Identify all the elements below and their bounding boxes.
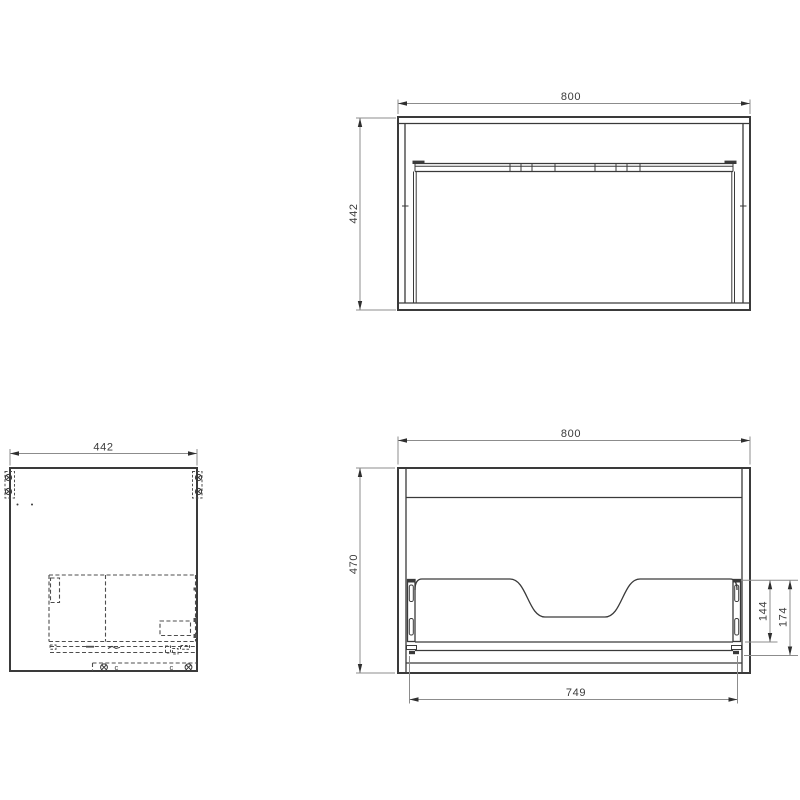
- dimension-top-width: 800: [398, 91, 750, 114]
- runner-outline: [49, 575, 197, 642]
- clip-mark-label: c: [170, 663, 174, 672]
- top-view-front-back-edges: [399, 124, 749, 304]
- rear-bottom-edges: [406, 642, 742, 663]
- top-view-outline: [398, 117, 750, 310]
- drawer-slide-right: [732, 580, 742, 655]
- dimension-label: 749: [566, 687, 586, 699]
- dimension-lines: [398, 437, 750, 465]
- side-view-outline: [10, 468, 197, 671]
- runner-end-cap: [50, 645, 56, 649]
- slide-foot-pad: [409, 651, 415, 654]
- back-panel-cutout-edge: [415, 579, 737, 617]
- runner-inner-box: [160, 621, 191, 636]
- pilot-hole-dot: [17, 504, 19, 506]
- side-view: c c: [5, 468, 202, 672]
- dimension-label: 800: [561, 428, 581, 440]
- top-view-slide-profiles: [414, 172, 735, 304]
- rail-slot-marks: [510, 164, 640, 172]
- drawer-slide-left: [407, 580, 417, 655]
- slide-foot-pad: [733, 651, 739, 654]
- hanging-rail: [413, 161, 737, 172]
- screw-cross-icon: [186, 665, 191, 670]
- hidden-drawer-runner: [49, 575, 197, 654]
- runner-mark: [86, 646, 94, 648]
- dimension-rear-height: 470: [348, 468, 395, 673]
- dimension-top-depth: 442: [348, 118, 396, 310]
- dimension-label: 800: [561, 91, 581, 103]
- hardware-strip-outline: [93, 663, 198, 671]
- technical-drawing-canvas: c c 800: [0, 0, 800, 800]
- dimension-lines: [744, 580, 798, 655]
- runner-edge-mark: [194, 588, 198, 591]
- slide-foot: [407, 646, 417, 650]
- slide-foot: [732, 646, 742, 650]
- slide-slot: [735, 619, 739, 636]
- dimension-lines: [356, 118, 396, 310]
- rail-edges: [415, 164, 733, 172]
- dimension-slide-height: 174: [744, 580, 798, 655]
- runner-lower-rails: [50, 647, 197, 653]
- slide-slot: [409, 585, 413, 602]
- rail-inner-edge: [415, 164, 733, 172]
- runner-edge-mark: [194, 634, 198, 638]
- slide-top-cap: [408, 580, 416, 583]
- rail-bracket-right: [725, 161, 737, 164]
- top-view: [398, 117, 750, 310]
- dimension-lines: [356, 468, 395, 673]
- pilot-hole-dot: [31, 504, 33, 506]
- runner-edge-mark: [194, 618, 198, 622]
- cabinet-drawing: c c 800: [0, 0, 800, 800]
- dimension-label: 144: [758, 601, 770, 621]
- rail-bracket-left: [413, 161, 425, 164]
- dimension-rear-width: 800: [398, 428, 750, 465]
- clip-mark-label: c: [115, 663, 119, 672]
- slide-top-cap: [733, 580, 741, 583]
- top-view-side-panel-inner-edges: [405, 124, 743, 304]
- dimension-label: 174: [778, 607, 790, 627]
- dimension-label: 442: [348, 203, 360, 223]
- dimension-label: 470: [348, 554, 360, 574]
- runner-bracket: [51, 578, 60, 603]
- slide-body: [408, 580, 416, 642]
- dimension-label: 442: [93, 442, 113, 454]
- screw-cross-icon: [102, 665, 107, 670]
- dimension-side-depth: 442: [10, 442, 197, 466]
- runner-latch-part: [173, 649, 179, 655]
- slide-slot: [409, 619, 413, 636]
- rear-view: [398, 468, 750, 673]
